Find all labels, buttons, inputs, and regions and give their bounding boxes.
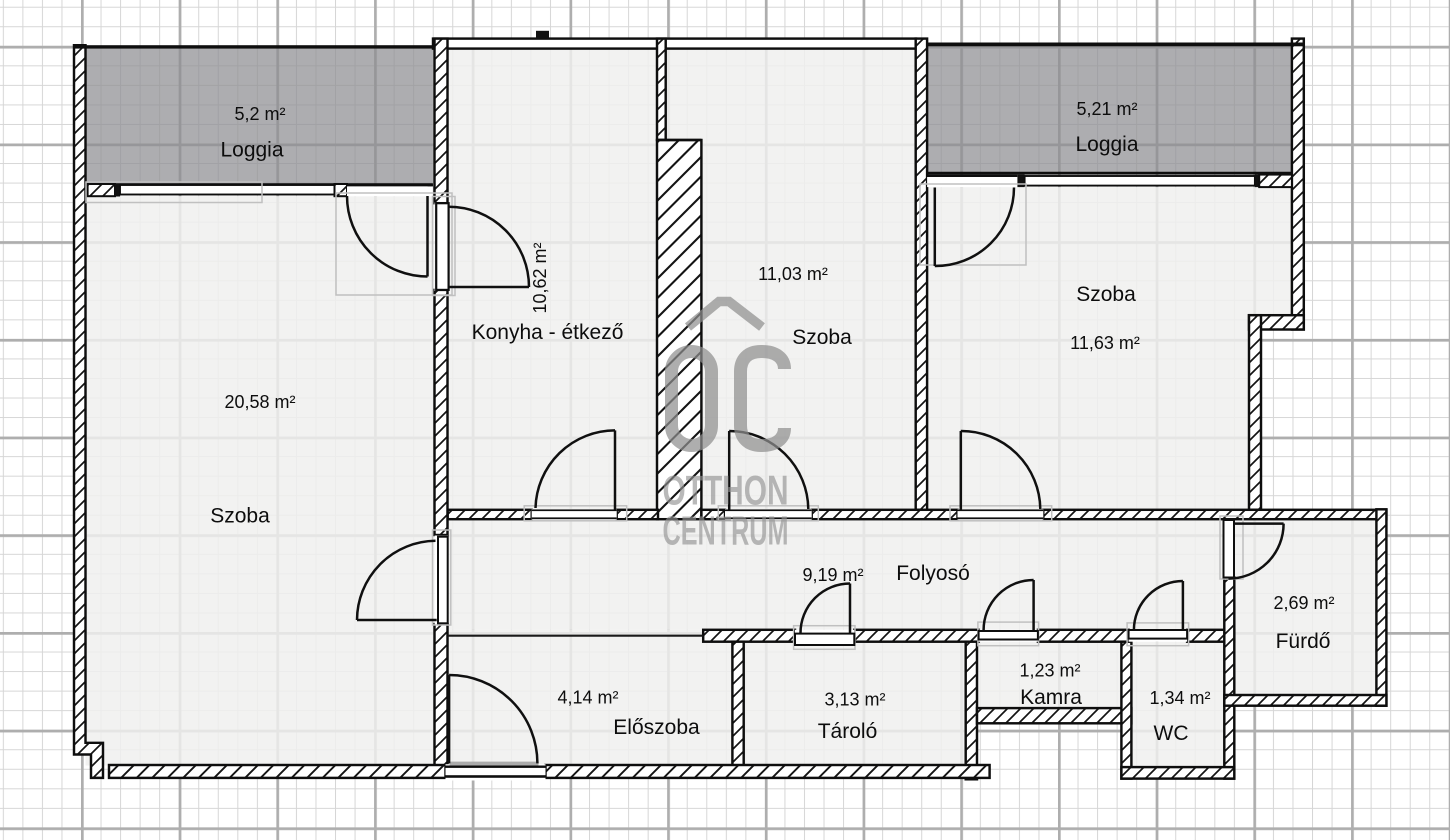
svg-text:Szoba: Szoba <box>210 505 270 528</box>
svg-text:Loggia: Loggia <box>220 138 283 161</box>
svg-text:Folyosó: Folyosó <box>896 562 970 585</box>
svg-text:11,63 m²: 11,63 m² <box>1070 333 1140 353</box>
svg-text:Fürdő: Fürdő <box>1276 630 1331 653</box>
svg-text:WC: WC <box>1154 722 1189 745</box>
svg-text:Kamra: Kamra <box>1020 686 1082 709</box>
svg-text:1,34 m²: 1,34 m² <box>1149 688 1210 708</box>
svg-text:Loggia: Loggia <box>1075 133 1138 156</box>
svg-text:Tároló: Tároló <box>818 720 878 743</box>
svg-text:Szoba: Szoba <box>792 326 852 349</box>
svg-text:9,19 m²: 9,19 m² <box>802 565 863 585</box>
svg-text:1,23 m²: 1,23 m² <box>1019 661 1080 681</box>
svg-text:11,03 m²: 11,03 m² <box>758 264 828 284</box>
svg-text:OTTHON: OTTHON <box>663 467 789 514</box>
svg-text:3,13 m²: 3,13 m² <box>824 690 885 710</box>
svg-text:CENTRUM: CENTRUM <box>663 508 789 554</box>
svg-text:2,69 m²: 2,69 m² <box>1273 593 1334 613</box>
svg-text:Szoba: Szoba <box>1076 283 1136 306</box>
svg-text:Konyha - étkező: Konyha - étkező <box>472 321 624 344</box>
svg-text:5,2 m²: 5,2 m² <box>234 104 285 124</box>
svg-text:10,62 m²: 10,62 m² <box>530 242 550 313</box>
svg-text:4,14 m²: 4,14 m² <box>557 688 618 708</box>
svg-text:Előszoba: Előszoba <box>613 716 700 739</box>
svg-text:5,21 m²: 5,21 m² <box>1076 99 1137 119</box>
svg-text:20,58 m²: 20,58 m² <box>224 392 295 412</box>
